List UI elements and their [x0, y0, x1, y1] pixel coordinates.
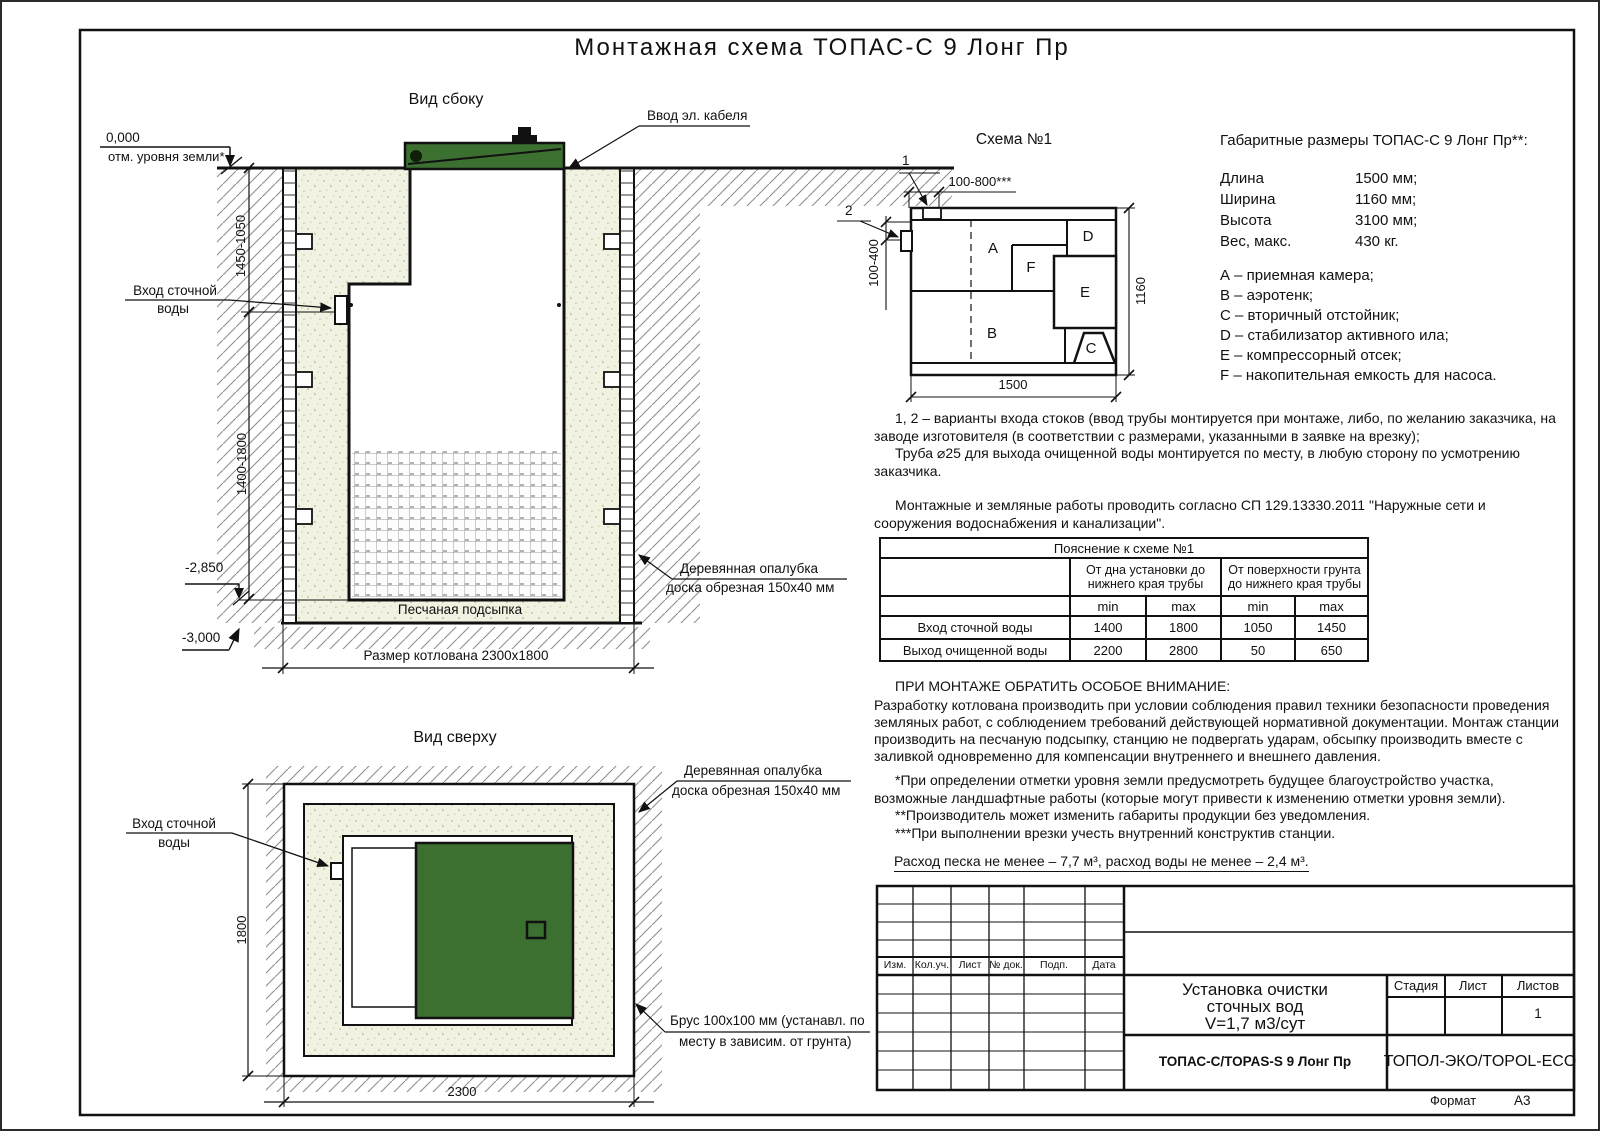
dim-upper: 1450-1050	[234, 215, 248, 277]
rev-header-koluch: Кол.уч.	[915, 960, 949, 972]
note-sp: Монтажные и земляные работы проводить со…	[874, 497, 1562, 532]
compartment-b: B	[987, 326, 997, 343]
footnote-1: *При определении отметки уровня земли пр…	[874, 772, 1566, 807]
dim-height-value: 3100 мм;	[1355, 213, 1417, 230]
ground-level-note: отм. уровня земли*	[108, 150, 225, 164]
footnote-3: ***При выполнении врезки учесть внутренн…	[874, 825, 1566, 843]
schema-dim-top: 100-800***	[949, 175, 1012, 189]
compartment-c: C	[1086, 341, 1097, 358]
formwork-label-2: доска обрезная 150х40 мм	[666, 581, 834, 596]
format-label: Формат	[1430, 1094, 1476, 1108]
attention-body: Разработку котлована производить при усл…	[874, 697, 1566, 765]
inlet-label: Вход сточной	[133, 284, 217, 299]
rev-header-list: Лист	[959, 960, 982, 972]
beam-label: Брус 100х100 мм (устанавл. по	[670, 1014, 865, 1029]
footnote-2: **Производитель может изменить габариты …	[874, 807, 1566, 825]
top-inlet-label-2: воды	[158, 836, 190, 851]
rev-header-ndok: № док.	[989, 960, 1023, 972]
schema-dim-bottom: 1500	[999, 378, 1028, 392]
page-title: Монтажная схема ТОПАС-С 9 Лонг Пр	[574, 35, 1070, 61]
schema-dim-left: 100-400	[867, 239, 881, 287]
rev-header-podp: Подп.	[1040, 960, 1068, 972]
notes-block: 1, 2 – варианты входа стоков (ввод трубы…	[874, 410, 1562, 532]
dim-width-label: Ширина	[1220, 192, 1275, 209]
dim-weight-value: 430 кг.	[1355, 234, 1399, 251]
company-name: ТОПОЛ-ЭКО/TOPOL-ECO	[1384, 1053, 1577, 1071]
legend-c: С – вторичный отстойник;	[1220, 308, 1399, 325]
footnotes: *При определении отметки уровня земли пр…	[874, 772, 1566, 842]
schema1-drawing	[837, 173, 1135, 402]
inlet-variant-2-stub	[901, 231, 912, 251]
note-variants: 1, 2 – варианты входа стоков (ввод трубы…	[874, 410, 1562, 445]
legend-e: Е – компрессорный отсек;	[1220, 348, 1402, 365]
formwork-label: Деревянная опалубка	[680, 562, 818, 577]
top-dim-width: 2300	[448, 1085, 477, 1099]
drawing-sheet: Монтажная схема ТОПАС-С 9 Лонг Пр Вид сб…	[0, 0, 1600, 1131]
model-designation: ТОПАС-С/TOPAS-S 9 Лонг Пр	[1159, 1055, 1351, 1070]
legend-b: В – аэротенк;	[1220, 288, 1313, 305]
legend-a: А – приемная камера;	[1220, 268, 1374, 285]
ground-hatch-left	[217, 168, 283, 623]
tank-lid	[405, 127, 564, 169]
inlet-variant-2-marker: 2	[845, 204, 853, 219]
consumption-note: Расход песка не менее – 7,7 м³, расход в…	[894, 854, 1309, 872]
dim-height-label: Высота	[1220, 213, 1272, 230]
top-formwork-label: Деревянная опалубка	[684, 764, 822, 779]
doc-title-3: V=1,7 м3/сут	[1205, 1015, 1305, 1034]
dims-title: Габаритные размеры ТОПАС-С 9 Лонг Пр**:	[1220, 133, 1528, 150]
schema-title: Схема №1	[976, 131, 1052, 148]
dim-weight-label: Вес, макс.	[1220, 234, 1291, 251]
col-min-1: min	[1070, 596, 1146, 616]
col-max-2: max	[1295, 596, 1368, 616]
compartment-a: A	[988, 241, 998, 258]
top-view-title: Вид сверху	[413, 729, 496, 747]
table-row: Выход очищенной воды 2200 2800 50 650	[880, 639, 1368, 661]
legend-f: F – накопительная емкость для насоса.	[1220, 368, 1497, 385]
compartment-d: D	[1083, 229, 1094, 246]
elevation-2850-value: -2,850	[185, 561, 223, 576]
table-row: Вход сточной воды 1400 1800 1050 1450	[880, 616, 1368, 639]
rev-header-izm: Изм.	[884, 960, 907, 972]
ground-hatch-right	[634, 168, 700, 623]
cable-entry-label: Ввод эл. кабеля	[647, 109, 747, 124]
sheet-header: Лист	[1459, 979, 1487, 993]
dim-width-value: 1160 мм;	[1355, 192, 1416, 209]
col-min-2: min	[1221, 596, 1295, 616]
tank-lid-top	[416, 843, 573, 1018]
dim-lower: 1400-1800	[235, 433, 249, 495]
inlet-fitting	[335, 296, 347, 324]
legend-d: D – стабилизатор активного ила;	[1220, 328, 1449, 345]
top-inlet-label: Вход сточной	[132, 817, 216, 832]
table-group-1: От дна установки донижнего края трубы	[1070, 558, 1221, 596]
attention-title: ПРИ МОНТАЖЕ ОБРАТИТЬ ОСОБОЕ ВНИМАНИЕ:	[895, 679, 1230, 694]
rev-header-data: Дата	[1092, 960, 1115, 972]
wood-formwork-left	[283, 168, 296, 623]
compartment-f: F	[1026, 260, 1035, 277]
top-dim-height: 1800	[235, 916, 249, 945]
beam-label-2: месту в зависим. от грунта)	[679, 1035, 851, 1050]
sand-bedding-label: Песчаная подсыпка	[398, 603, 522, 618]
explanation-table: Пояснение к схеме №1 От дна установки до…	[879, 537, 1369, 662]
schema-dim-right: 1160	[1134, 277, 1148, 305]
inlet-label-2: воды	[157, 302, 189, 317]
sheets-header: Листов	[1517, 979, 1559, 993]
pit-size-label: Размер котлована 2300х1800	[364, 649, 549, 664]
note-pipe: Труба ⌀25 для выхода очищенной воды монт…	[874, 445, 1562, 480]
elevation-3000-value: -3,000	[182, 631, 220, 646]
col-max-1: max	[1146, 596, 1221, 616]
table-group-2: От поверхности грунтадо нижнего края тру…	[1221, 558, 1368, 596]
inlet-variant-1-marker: 1	[902, 154, 910, 169]
sheets-value: 1	[1534, 1007, 1542, 1022]
top-formwork-label-2: доска обрезная 150х40 мм	[672, 784, 840, 799]
elevation-zero-value: 0,000	[106, 131, 140, 146]
inlet-fitting-top	[331, 863, 343, 879]
table-title: Пояснение к схеме №1	[880, 538, 1368, 558]
dim-length-value: 1500 мм;	[1355, 171, 1417, 188]
tank-ribbed-section	[352, 451, 561, 597]
wood-formwork-right	[620, 168, 634, 623]
stage-header: Стадия	[1394, 979, 1438, 993]
side-view-title: Вид сбоку	[409, 91, 484, 109]
compartment-e: E	[1080, 285, 1090, 302]
inlet-variant-1-stub	[923, 208, 941, 219]
format-value: А3	[1514, 1094, 1531, 1109]
dim-length-label: Длина	[1220, 171, 1264, 188]
